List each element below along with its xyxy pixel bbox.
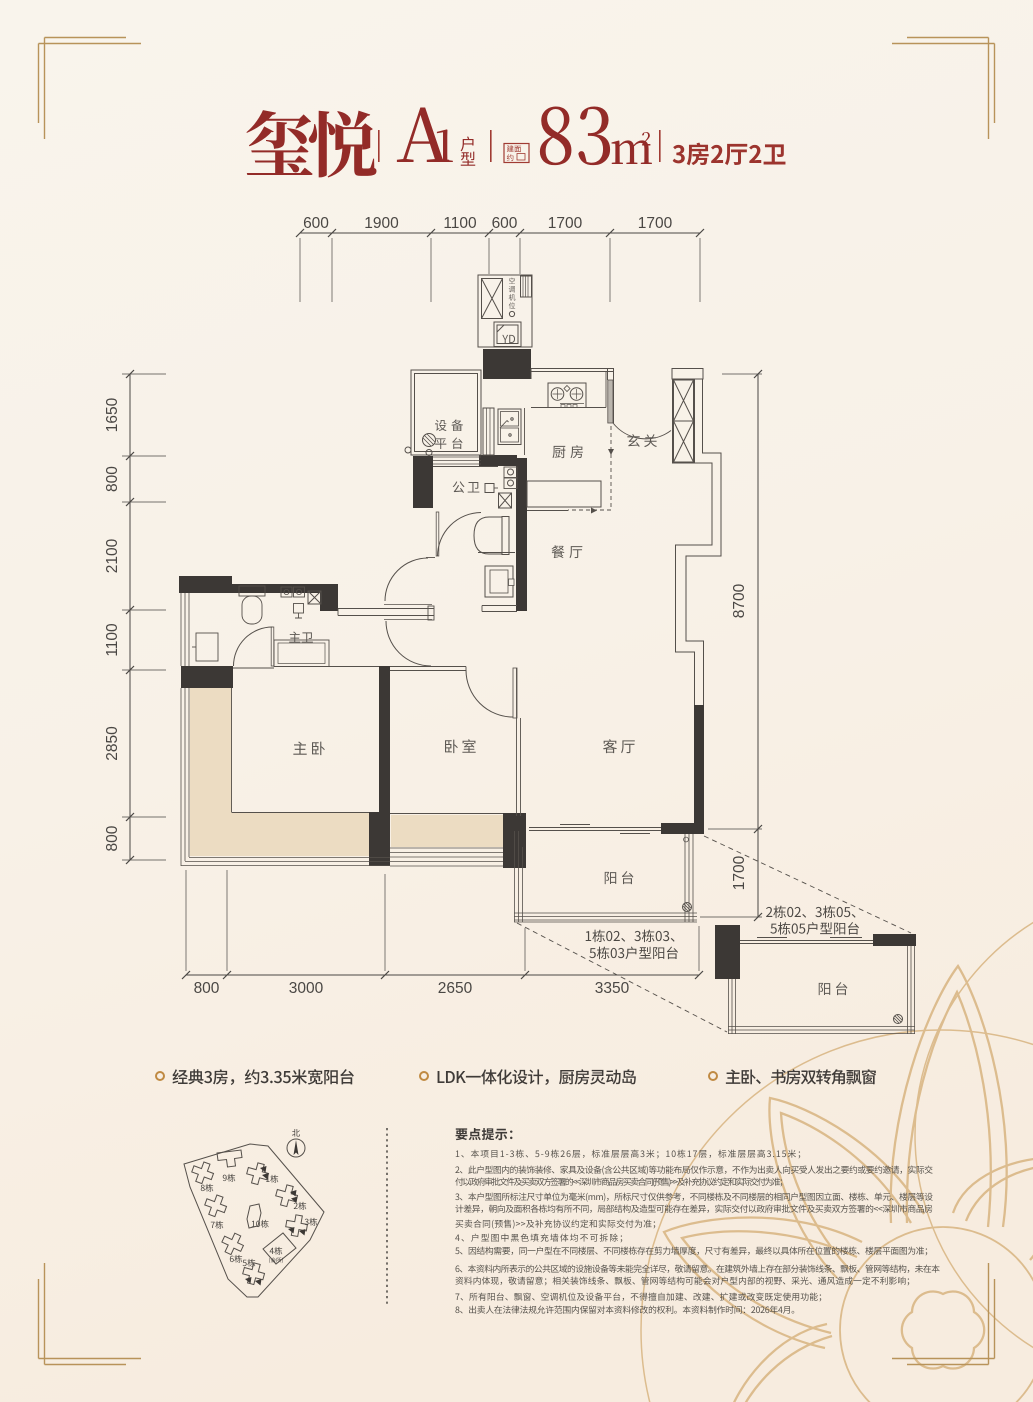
svg-text:3000: 3000: [289, 980, 324, 997]
svg-text:3350: 3350: [595, 980, 630, 997]
svg-text:2650: 2650: [438, 980, 473, 997]
svg-text:1100: 1100: [443, 215, 477, 232]
svg-text:800: 800: [104, 466, 121, 492]
svg-text:2850: 2850: [104, 726, 121, 761]
svg-text:1700: 1700: [638, 215, 673, 232]
svg-text:600: 600: [492, 215, 518, 232]
svg-text:800: 800: [194, 980, 220, 997]
svg-text:1900: 1900: [364, 215, 399, 232]
svg-text:1650: 1650: [104, 397, 121, 432]
svg-text:1100: 1100: [104, 623, 121, 657]
svg-text:1700: 1700: [731, 855, 748, 890]
svg-text:8700: 8700: [731, 583, 748, 618]
svg-text:800: 800: [104, 825, 121, 851]
svg-text:1700: 1700: [548, 215, 583, 232]
svg-text:600: 600: [303, 215, 329, 232]
svg-text:2100: 2100: [104, 538, 121, 573]
